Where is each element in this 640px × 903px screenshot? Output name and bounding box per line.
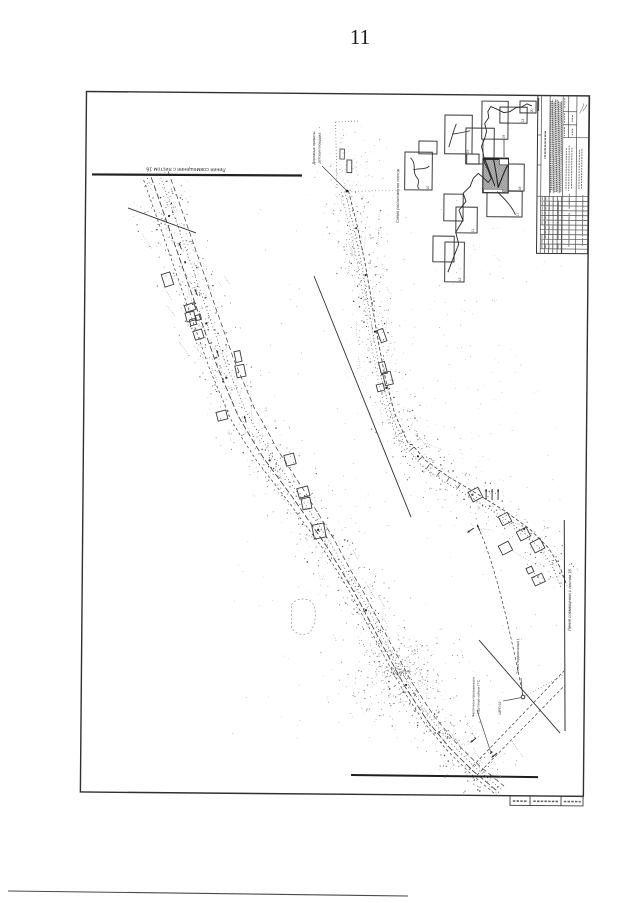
svg-text:ШРП 92: ШРП 92 (498, 702, 502, 715)
svg-text:19: 19 (502, 135, 506, 139)
svg-text:12: 12 (458, 277, 462, 281)
svg-text:11: 11 (471, 229, 475, 233)
svg-text:18: 18 (518, 186, 522, 190)
svg-text:13: 13 (521, 119, 525, 123)
svg-text:в футляре кабеля ГТС: в футляре кабеля ГТС (476, 679, 480, 714)
svg-text:15: 15 (466, 149, 470, 153)
svg-text:16: 16 (426, 185, 430, 189)
svg-text:Точка подключения 1: Точка подключения 1 (516, 638, 520, 673)
svg-text:Фактически проложенного: Фактически проложенного (471, 677, 475, 717)
svg-text:Линия совмещения с листом 16: Линия совмещения с листом 16 (146, 166, 226, 173)
svg-text:детская площадка: детская площадка (317, 133, 321, 164)
svg-text:20: 20 (530, 108, 534, 112)
svg-text:Схема расположения листов: Схема расположения листов (395, 169, 400, 223)
svg-text:17: 17 (516, 212, 520, 216)
svg-text:Дорожные приметы: Дорожные приметы (312, 131, 316, 164)
svg-text:Линия совмещения с листом 18: Линия совмещения с листом 18 (567, 568, 573, 631)
